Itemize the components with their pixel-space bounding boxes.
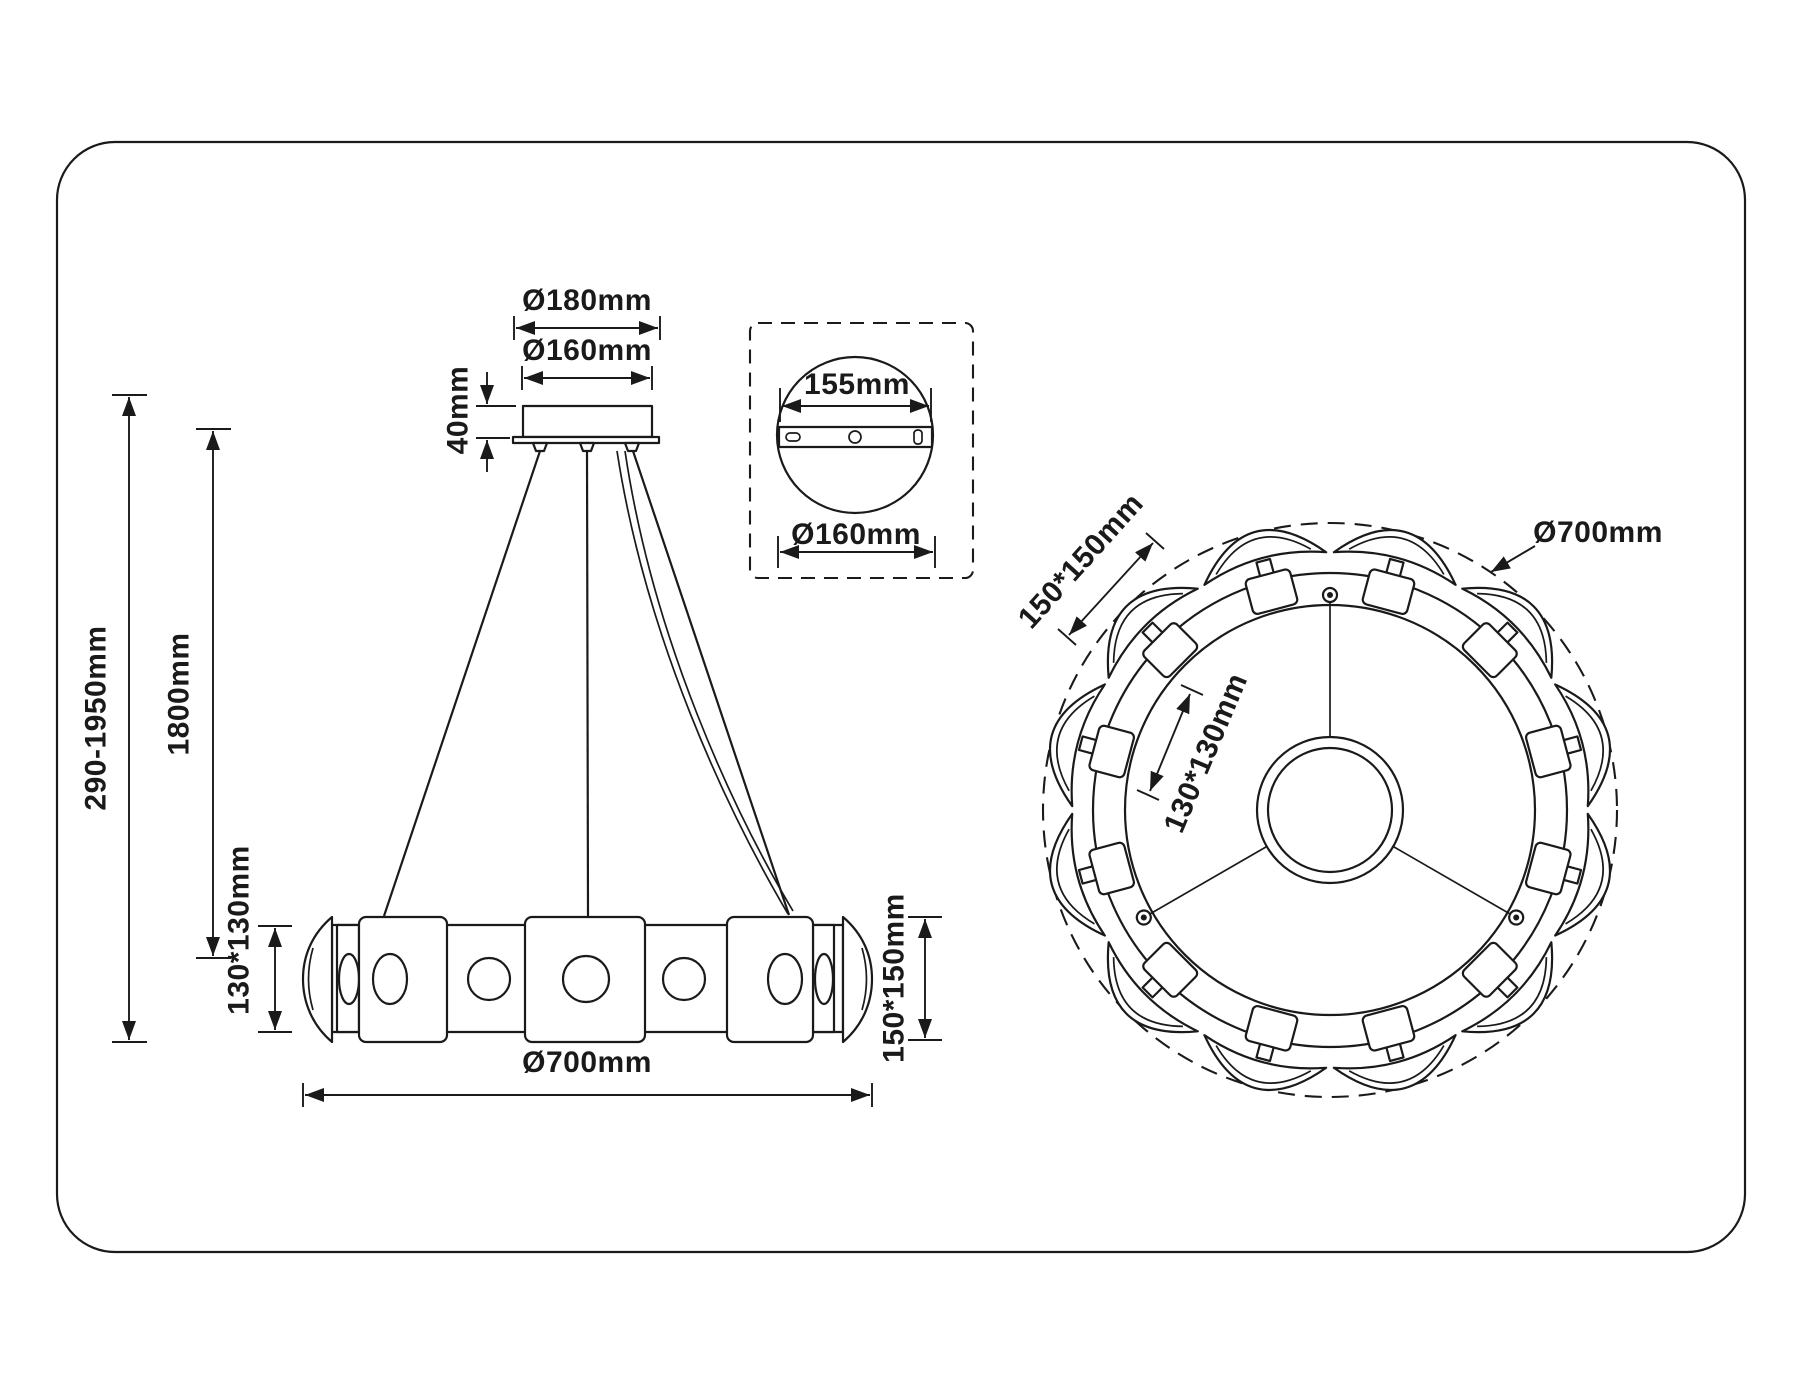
dim-label-canopy-diameter: Ø160mm [522, 334, 652, 367]
lens-side-right [815, 954, 833, 1004]
dim-label-mounting-plate-width: 155mm [804, 368, 910, 401]
dim-canopy-height: 40mm [442, 366, 517, 472]
dim-fixture-diameter-front: Ø700mm [303, 1046, 872, 1107]
wire-hanger [625, 443, 639, 451]
dim-suspension-length: 1800mm [163, 429, 232, 958]
lens-module [1323, 995, 1465, 1105]
suspension-wire-center [587, 451, 588, 916]
dim-label-canopy-outer-diameter: Ø180mm [522, 284, 652, 317]
front-view: Ø180mm Ø160mm 40mm 290-1950mm [80, 284, 943, 1107]
dim-label-fixture-diameter-front: Ø700mm [522, 1046, 652, 1079]
dim-inner-lens-top: 130*130mm [1137, 668, 1254, 837]
lens-dome-left [303, 917, 332, 1042]
dim-overall-height: 290-1950mm [80, 395, 148, 1042]
dim-label-overall-height: 290-1950mm [80, 625, 113, 810]
dim-label-outer-lens-front: 150*150mm [878, 893, 911, 1063]
dim-label-inner-lens-front: 130*130mm [223, 845, 256, 1015]
dim-canopy-diameter: Ø160mm [522, 334, 652, 390]
ceiling-canopy [523, 406, 652, 437]
power-cord [625, 451, 793, 911]
top-view: 150*150mm 130*130mm Ø700mm [1012, 487, 1663, 1105]
mounting-plate-bar [779, 427, 932, 447]
technical-drawing: Ø180mm Ø160mm 40mm 290-1950mm [0, 0, 1800, 1400]
lens-module [1036, 803, 1146, 945]
wire-hanger [580, 443, 594, 451]
dim-label-suspension-length: 1800mm [163, 632, 196, 755]
suspension-wire-left [384, 451, 540, 916]
center-hub-outer [1257, 737, 1403, 883]
spoke-top [1323, 588, 1337, 737]
lens-panel-center [525, 917, 645, 1042]
lens-module [1195, 995, 1337, 1105]
dim-outer-lens-front: 150*150mm [878, 893, 943, 1063]
dim-fixture-diameter-top: Ø700mm [1491, 516, 1663, 572]
dim-inner-lens-front: 130*130mm [223, 845, 293, 1032]
dim-canopy-outer-diameter: Ø180mm [514, 284, 660, 340]
technical-drawing-page: Ø180mm Ø160mm 40mm 290-1950mm [0, 0, 1800, 1400]
lens-module [1323, 516, 1465, 626]
suspension-wire-right [633, 451, 789, 915]
drawing-frame [57, 142, 1745, 1252]
dim-canopy-diameter-detail: Ø160mm [778, 518, 935, 568]
lens-side-left [339, 954, 359, 1004]
power-cord [617, 451, 788, 914]
lens-module [1036, 675, 1146, 817]
dim-label-canopy-height: 40mm [442, 366, 475, 455]
canopy-detail-view: 155mm Ø160mm [750, 323, 973, 578]
lens-panel [727, 917, 813, 1042]
wire-hanger [533, 443, 547, 451]
fixture-band [303, 917, 872, 1042]
lens-module [1195, 516, 1337, 626]
lens-dome-right [843, 917, 872, 1042]
lens-module [1515, 675, 1625, 817]
dim-label-canopy-diameter-detail: Ø160mm [791, 518, 921, 551]
lens-module [1515, 803, 1625, 945]
dim-label-inner-lens-top: 130*130mm [1158, 668, 1255, 837]
dim-label-fixture-diameter-top: Ø700mm [1533, 516, 1663, 549]
